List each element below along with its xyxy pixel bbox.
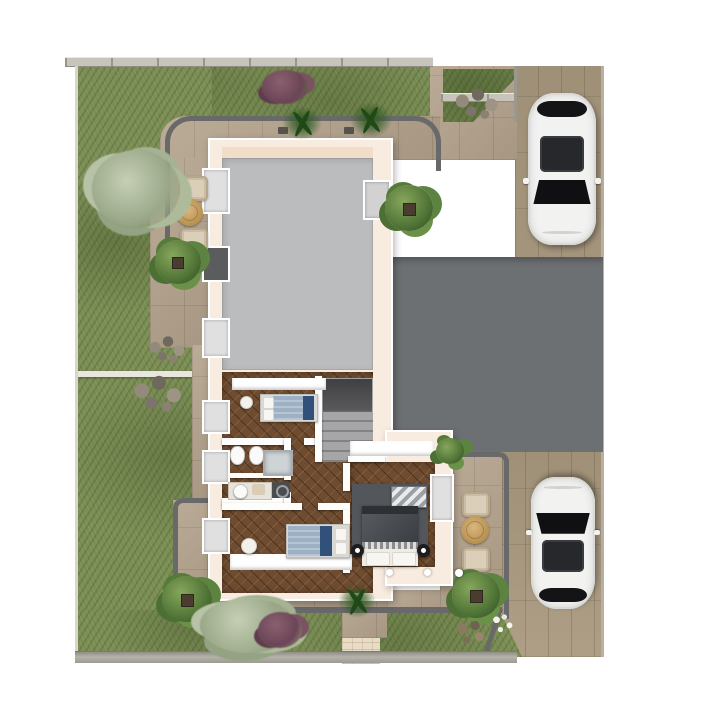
white-flower-patch [490, 610, 516, 638]
car-mirror-left-icon [523, 178, 530, 184]
wall-hall-north [348, 456, 385, 462]
car-top-right-body [528, 93, 596, 245]
upper-room-top-strip [222, 147, 373, 158]
window-west-2 [202, 318, 230, 358]
fern-south [338, 584, 376, 618]
round-basin [233, 484, 248, 499]
car-windshield-icon [536, 513, 590, 534]
purple-shrub-north [262, 70, 308, 104]
south-retaining-wall [75, 651, 517, 663]
bedroom2-throw [320, 526, 332, 556]
master-side-table-left [351, 544, 364, 557]
toilet [230, 446, 245, 465]
upper-gray-room [222, 158, 373, 370]
north-fence [65, 57, 433, 67]
car-roof-glass-icon [540, 136, 585, 172]
bedroom1-plant-pot [240, 396, 253, 409]
patio-east-table [461, 516, 489, 544]
window-band-bedroom1 [232, 378, 326, 390]
bush-planter [181, 594, 194, 607]
car-top-right [528, 93, 596, 245]
concrete-terrace [386, 257, 603, 452]
floor-plan-canvas [0, 0, 720, 720]
bedroom1-pillow-top [263, 397, 274, 409]
fence-post-east [514, 66, 517, 122]
bedroom1-duvet [273, 396, 303, 420]
rock-cluster-west [128, 370, 190, 416]
dry-shrub-south [450, 616, 492, 648]
wall-master-west-a [343, 463, 350, 491]
bush-planter [470, 590, 483, 603]
bedroom1-pillow-bottom [263, 409, 274, 421]
wall-bedroom2-top-b [318, 503, 350, 510]
car-windshield-icon [533, 180, 590, 204]
car-rear-window-icon [539, 588, 586, 603]
washing-machine [272, 482, 290, 498]
window-band-terrace [350, 441, 434, 456]
patio-west-chair-north [180, 176, 208, 201]
master-side-table-right [417, 544, 430, 557]
bidet [249, 446, 264, 465]
purple-shrub-south [258, 612, 302, 648]
car-mirror-right-icon [594, 530, 600, 535]
wall-sconce-left [386, 569, 393, 576]
bedroom1-throw [303, 396, 314, 420]
silver-shrub-northwest [92, 150, 180, 228]
master-bed [362, 506, 418, 566]
car-bottom-right-body [531, 477, 595, 609]
wall-sconce-right [424, 569, 431, 576]
shower-cabin [263, 450, 293, 476]
fern-north-right [350, 102, 392, 138]
bush-planter [172, 257, 184, 269]
wall-bedroom2-top-a [222, 503, 302, 510]
master-dresser [391, 486, 427, 508]
master-duvet [362, 514, 418, 542]
fern-north-left [282, 106, 322, 140]
car-hood-line [542, 231, 583, 234]
bedroom2-bed [286, 524, 350, 558]
car-mirror-right-icon [595, 178, 602, 184]
rock-cluster-northeast [450, 84, 506, 122]
window-west-4 [202, 450, 230, 484]
bedroom2-pillow-top [335, 528, 347, 541]
window-west-3 [202, 400, 230, 434]
master-pattern-runner [362, 542, 418, 549]
rock-cluster-west-2 [145, 332, 191, 366]
patio-west-table [176, 199, 203, 226]
green-bush-east-top [385, 185, 433, 231]
green-bush-east-patio-top [436, 438, 464, 464]
window-master-east [430, 474, 454, 522]
patio-east-chair-south [462, 547, 490, 572]
bush-planter [403, 203, 416, 216]
master-pillow-right [392, 552, 416, 566]
master-pillow-left [366, 552, 390, 566]
car-rear-window-icon [537, 101, 587, 118]
bath-mat [252, 484, 265, 495]
wall-bedroom1-bath [222, 438, 288, 445]
sphere-light-southeast [455, 569, 463, 577]
patio-east-chair-north [462, 492, 490, 517]
green-bush-west-mid [155, 240, 201, 284]
bedroom2-pillow-bottom [335, 542, 347, 555]
west-boundary-line [75, 66, 78, 656]
bedroom2-pouf [241, 538, 257, 554]
window-west-5 [202, 518, 230, 554]
car-bottom-right [531, 477, 595, 609]
car-mirror-left-icon [526, 530, 532, 535]
car-roof-glass-icon [542, 540, 584, 572]
bedroom1-bed [260, 394, 318, 422]
car-hood-line [544, 486, 582, 489]
master-footboard-bench [362, 506, 418, 514]
